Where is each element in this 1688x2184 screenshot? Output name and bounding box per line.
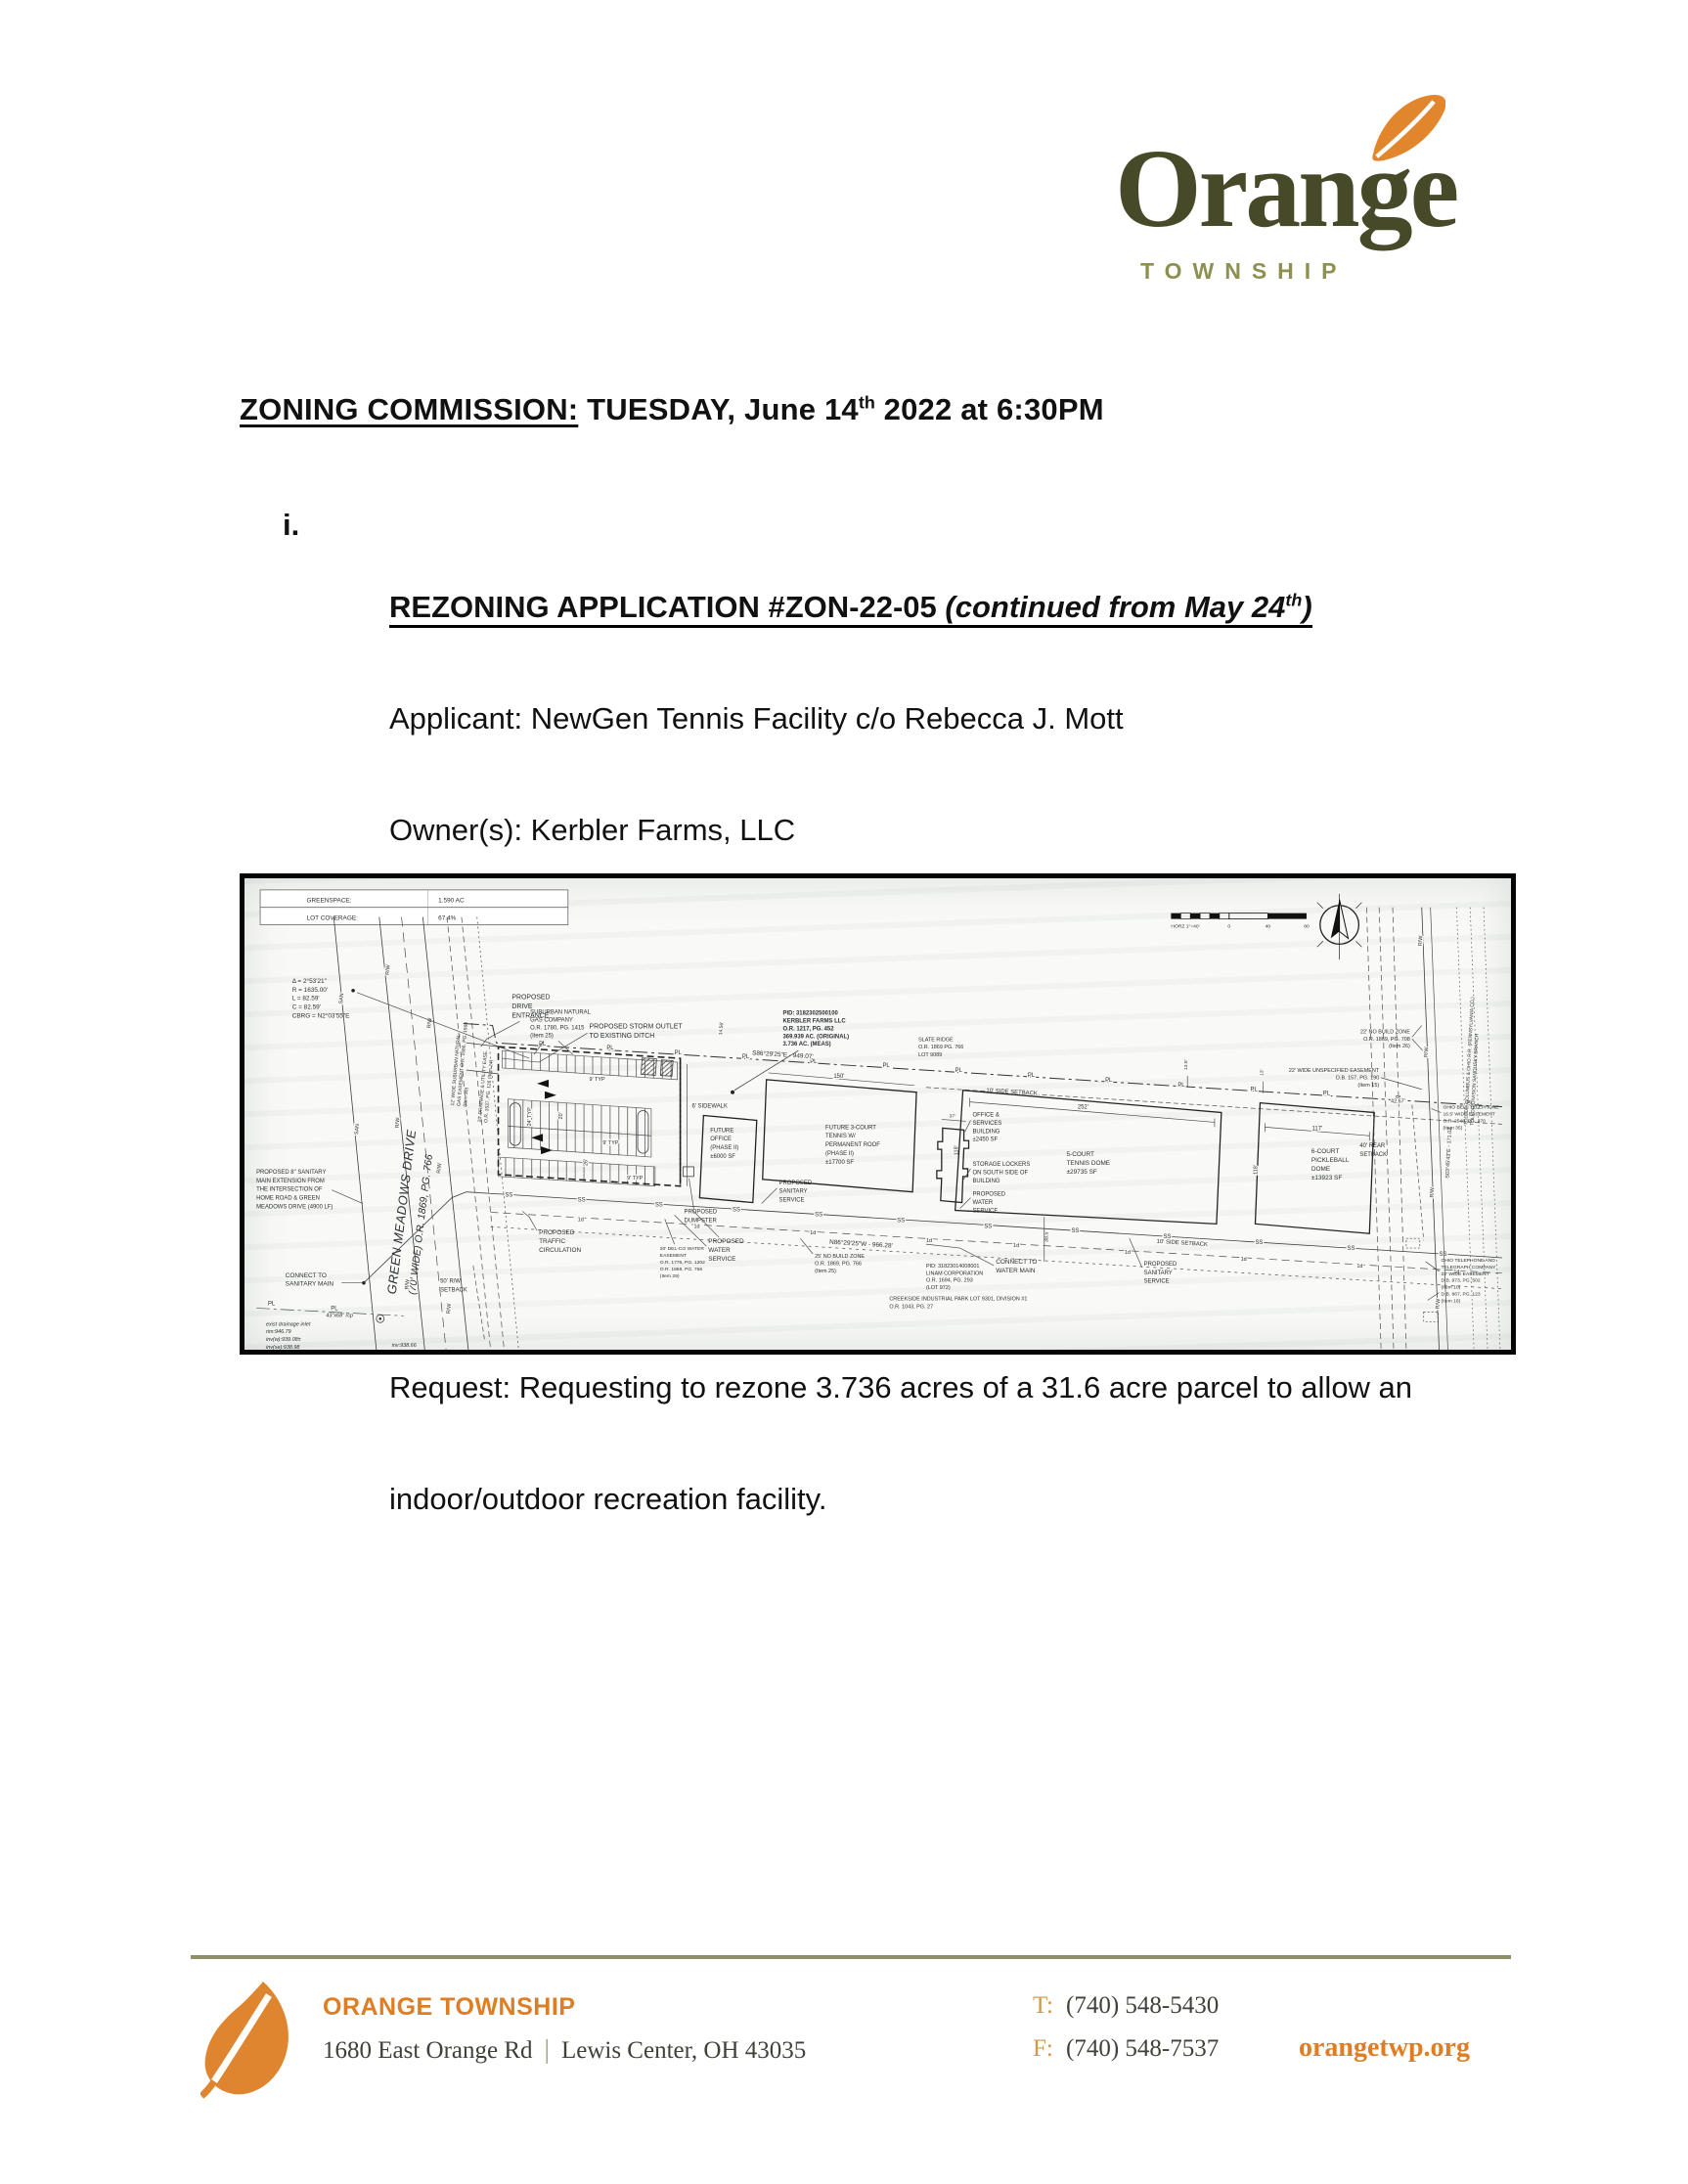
svg-text:PL: PL <box>1251 1088 1259 1093</box>
svg-text:9' TYP: 9' TYP <box>602 1140 618 1146</box>
north-arrow-icon <box>1317 894 1362 959</box>
svg-text:PL: PL <box>1177 1083 1185 1089</box>
office-services-label: OFFICE &SERVICESBUILDING±2450 SF <box>972 1112 1001 1142</box>
office-services-building: 37' 118' <box>937 1113 969 1202</box>
svg-text:1d: 1d <box>1356 1264 1362 1270</box>
pid-kerbler-label: PID: 3182302500100KERBLER FARMS LLCO.R. … <box>783 1011 850 1048</box>
item-marker: i. <box>283 508 299 543</box>
future-office-building: FUTUREOFFICE(PHASE II)±6000 SF <box>699 1115 756 1202</box>
svg-text:5-COURTTENNIS DOME±29735 SF: 5-COURTTENNIS DOME±29735 SF <box>1066 1151 1110 1176</box>
sanitary-service-label-2: PROPOSEDSANITARYSERVICE <box>1144 1262 1177 1285</box>
drainage-easement-label: 20' DRAINAGE & UTILITY EASE.O.R. 1537, P… <box>477 1050 496 1124</box>
request-line-2: indoor/outdoor recreation facility. <box>389 1481 1412 1518</box>
svg-text:R/W: R/W <box>404 1278 411 1290</box>
unspec-easement-label: 22' WIDE UNSPECIFIED EASEMENTD.B. 157, P… <box>1289 1068 1380 1089</box>
gas-easement-label: 12' WIDE SUBURBAN NATURALGAS EASEMENT O.… <box>450 1021 475 1107</box>
svg-text:PL: PL <box>955 1068 963 1074</box>
water-service-label-2: PROPOSEDWATERSERVICE <box>972 1192 1005 1215</box>
linam-label: PID: 31823014008001LINAM CORPORATIONO.R.… <box>926 1264 983 1291</box>
owner-line: Owner(s): Kerbler Farms, LLC <box>389 812 1412 849</box>
svg-text:SS: SS <box>733 1207 740 1213</box>
storm-outlet-label: PROPOSED STORM OUTLETTO EXISTING DITCH <box>590 1023 684 1039</box>
bearing-east: S03°45'43"E - 171.02' <box>1444 1127 1453 1179</box>
green-meadows-drive: GREEN MEADOWS DRIVE (70' WIDE) O.R. 1869… <box>333 917 518 1350</box>
svg-text:24' TYP: 24' TYP <box>527 1107 533 1126</box>
greenspace-label: GREENSPACE: <box>307 898 352 905</box>
footer-leaf-icon <box>200 1980 293 2099</box>
svg-text:R/W: R/W <box>395 1117 402 1129</box>
side-setback-bottom: 10' SIDE SETBACK <box>1156 1239 1208 1248</box>
svg-text:PL: PL <box>675 1050 683 1056</box>
no-build-22-label: 22' NO BUILD ZONEO.R. 1869, PG. 708(Item… <box>1360 1029 1410 1049</box>
footer-fax: F:(740) 548-7537 <box>1033 2035 1219 2063</box>
coverage-label: LOT COVERAGE: <box>307 915 359 922</box>
svg-text:1d: 1d <box>578 1217 584 1223</box>
traffic-label: PROPOSEDTRAFFICCIRCULATION <box>539 1229 581 1254</box>
footer-website-link[interactable]: orangetwp.org <box>1299 2032 1470 2064</box>
connect-sanitary-label: CONNECT TOSANITARY MAIN <box>286 1272 334 1288</box>
svg-text:R/W: R/W <box>1430 1186 1437 1198</box>
svg-text:26': 26' <box>584 1159 590 1166</box>
svg-text:1d: 1d <box>926 1238 932 1244</box>
logo-township-text: TOWNSHIP <box>1140 258 1348 285</box>
orange-township-logo: Orange TOWNSHIP <box>1115 86 1526 296</box>
address-divider: | <box>533 2034 561 2064</box>
svg-text:FUTUREOFFICE(PHASE II)±6000 SF: FUTUREOFFICE(PHASE II)±6000 SF <box>710 1128 738 1160</box>
svg-text:20': 20' <box>558 1112 564 1119</box>
svg-text:PL: PL <box>1028 1073 1036 1079</box>
dumpster-label: PROPOSEDDUMPSTER <box>685 1209 718 1224</box>
document-page: Orange TOWNSHIP ZONING COMMISSION: TUESD… <box>0 0 1688 2184</box>
suburban-gas-label: SUBURBAN NATURALGAS COMPANYO.R. 1780, PG… <box>530 1010 591 1040</box>
svg-text:80: 80 <box>1304 923 1310 929</box>
svg-text:PL: PL <box>742 1054 750 1060</box>
svg-text:SS: SS <box>1071 1228 1079 1234</box>
svg-text:9' TYP: 9' TYP <box>627 1176 643 1181</box>
svg-text:SS: SS <box>1255 1240 1263 1246</box>
footer-phone: T:(740) 548-5430 <box>1033 1992 1219 2020</box>
svg-text:SS: SS <box>897 1218 905 1224</box>
sidewalk-label: 6' SIDEWALK <box>691 1104 728 1110</box>
svg-text:PL: PL <box>1105 1078 1113 1084</box>
svg-text:FUTURE 3-COURTTENNIS W/PERMANE: FUTURE 3-COURTTENNIS W/PERMANENT ROOF(PH… <box>825 1125 880 1166</box>
svg-text:252': 252' <box>1078 1105 1088 1111</box>
future-tennis-building: FUTURE 3-COURTTENNIS W/PERMANENT ROOF(PH… <box>763 1073 916 1192</box>
scale-label: HORZ 1"=40' <box>1171 923 1199 929</box>
leaf-icon <box>1365 86 1445 170</box>
svg-text:1d: 1d <box>693 1224 699 1229</box>
svg-text:R/W: R/W <box>1418 935 1425 947</box>
svg-text:PL: PL <box>1323 1092 1331 1097</box>
svg-text:SS: SS <box>984 1224 992 1229</box>
svg-text:PL: PL <box>268 1301 276 1307</box>
svg-text:42.67': 42.67' <box>1391 1099 1405 1105</box>
plan-stats-table: GREENSPACE: 1.590 AC LOT COVERAGE: 67.4% <box>260 890 568 925</box>
scale-bar: HORZ 1"=40' 0 40 80 <box>1171 914 1310 930</box>
svg-text:R/W: R/W <box>1424 1046 1431 1057</box>
inv-note: inv:938.66 <box>392 1343 418 1349</box>
svg-text:150': 150' <box>833 1074 844 1080</box>
applicant-line: Applicant: NewGen Tennis Facility c/o Re… <box>389 700 1412 737</box>
delco-label: 20' DEL-CO WATEREASEMENTO.R. 1776, PG. 1… <box>660 1246 705 1279</box>
svg-text:PL: PL <box>331 1306 338 1312</box>
sanitary-main-label: PROPOSED 8" SANITARYMAIN EXTENSION FROMT… <box>256 1170 333 1211</box>
footer-rule <box>191 1955 1511 1959</box>
svg-text:38.5': 38.5' <box>1044 1231 1050 1243</box>
pickleball-dome-building: 117' 6-COURTPICKLEBALLDOME±13923 SF 118' <box>1253 1103 1374 1234</box>
svg-text:SS: SS <box>1348 1246 1355 1252</box>
water-service-label-1: PROPOSEDWATERSERVICE <box>708 1238 744 1263</box>
svg-text:R/W: R/W <box>446 1303 453 1315</box>
creekside-label: CREEKSIDE INDUSTRIAL PARK LOT 9301, DIVI… <box>889 1297 1027 1311</box>
request-line: Request: Requesting to rezone 3.736 acre… <box>389 1369 1412 1406</box>
svg-text:40: 40 <box>1266 923 1271 929</box>
greenspace-value: 1.590 AC <box>438 898 465 905</box>
svg-text:1d: 1d <box>1241 1257 1247 1263</box>
svg-text:PL: PL <box>606 1046 614 1051</box>
connect-water-label: CONNECT TOWATER MAIN <box>996 1259 1037 1274</box>
sanitary-service-label-1: PROPOSEDSANITARYSERVICE <box>779 1181 813 1204</box>
footer-org-name: ORANGE TOWNSHIP <box>323 1993 575 2022</box>
ohio-telephone-label: OHIO TELEPHONE ANDTELEGRAPH COMPANY22' W… <box>1442 1258 1497 1305</box>
svg-text:SS: SS <box>505 1193 512 1199</box>
drive-entrance-label: PROPOSEDDRIVEENTRANCE <box>511 995 550 1020</box>
svg-text:0: 0 <box>1227 923 1230 929</box>
footer-address: 1680 East Orange Rd|Lewis Center, OH 430… <box>323 2034 806 2065</box>
svg-text:118': 118' <box>1253 1165 1259 1175</box>
svg-text:117': 117' <box>1312 1126 1323 1132</box>
svg-text:SS: SS <box>1440 1252 1447 1258</box>
tennis-dome-building: 252' 5-COURTTENNIS DOME±29735 SF <box>955 1091 1222 1225</box>
svg-text:SS: SS <box>815 1212 822 1218</box>
svg-text:SS: SS <box>655 1203 663 1209</box>
svg-text:14.56': 14.56' <box>718 1022 725 1036</box>
storage-lockers-label: STORAGE LOCKERSON SOUTH SIDE OFBUILDING <box>972 1162 1030 1184</box>
parking-area: 24' TYP 20' 26' 9' TYP 9' TYP 9' TYP <box>466 1043 681 1185</box>
svg-text:R/W: R/W <box>385 963 392 975</box>
svg-text:9' TYP: 9' TYP <box>590 1077 605 1083</box>
svg-text:SAN: SAN <box>354 1124 361 1136</box>
rcp-note: 43"x68" rcp <box>326 1313 353 1318</box>
svg-text:SS: SS <box>578 1198 586 1204</box>
heading-underlined: ZONING COMMISSION: <box>240 392 578 426</box>
item-title: REZONING APPLICATION #ZON-22-05 (continu… <box>389 590 1312 628</box>
bearing-north: S86°29'25"E - 949.07' <box>752 1048 814 1060</box>
svg-text:PL: PL <box>882 1063 890 1069</box>
svg-text:37': 37' <box>949 1113 955 1119</box>
site-plan-image: GREENSPACE: 1.590 AC LOT COVERAGE: 67.4%… <box>240 873 1516 1355</box>
svg-text:1d: 1d <box>810 1230 816 1236</box>
rw-setback-label: 50' R/WSETBACK <box>440 1279 467 1294</box>
svg-text:6-COURTPICKLEBALLDOME±13923 SF: 6-COURTPICKLEBALLDOME±13923 SF <box>1311 1148 1350 1181</box>
no-build-25-label: 25' NO BUILD ZONEO.R. 1869, PG. 766(Item… <box>815 1254 865 1274</box>
svg-text:13': 13' <box>1259 1069 1265 1075</box>
svg-text:SAN: SAN <box>338 993 345 1004</box>
svg-text:1d: 1d <box>1013 1243 1019 1249</box>
svg-text:13.5': 13.5' <box>1183 1059 1189 1070</box>
drainage-note: exist drainage inletrim:946.79inv(w):939… <box>266 1321 311 1350</box>
svg-text:1d: 1d <box>1125 1250 1131 1256</box>
svg-text:R/W: R/W <box>426 1017 433 1029</box>
svg-text:R/W: R/W <box>436 1162 443 1174</box>
meeting-heading: ZONING COMMISSION: TUESDAY, June 14th 20… <box>240 392 1104 427</box>
slate-ridge-label: SLATE RIDGEO.R. 1869 PG. 766LOT 9089 <box>918 1037 963 1058</box>
bearing-south: N86°29'25"W - 966.28' <box>829 1238 893 1250</box>
